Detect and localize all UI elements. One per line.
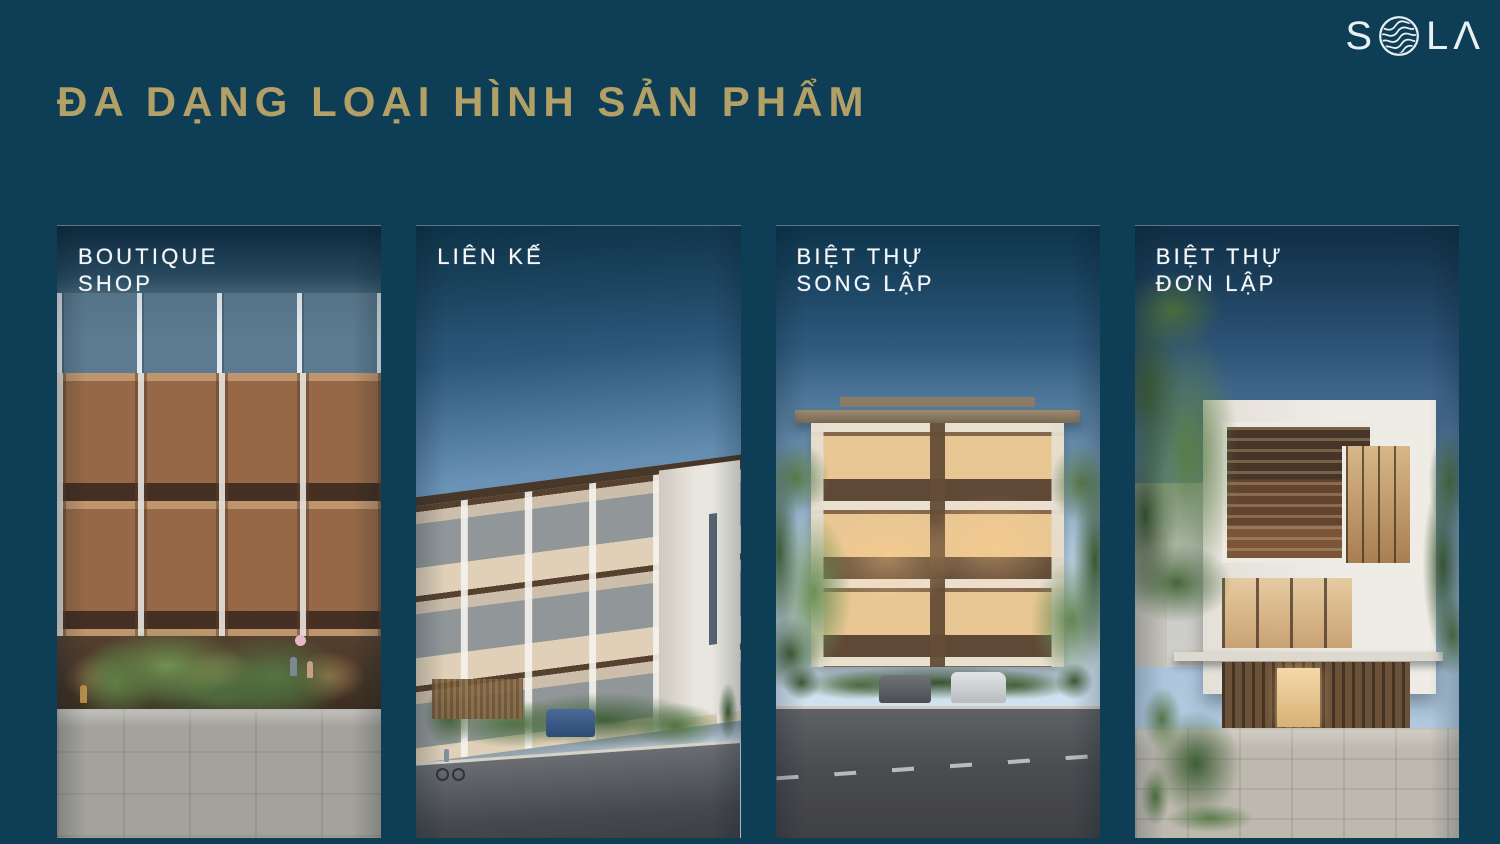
card-label: LIÊN KẾ: [437, 243, 544, 270]
fence: [432, 679, 523, 719]
card-label: BIỆT THỰ ĐƠN LẬP: [1156, 243, 1284, 298]
product-card-biet-thu-song-lap: BIỆT THỰ SONG LẬP: [776, 225, 1100, 838]
pedestrian: [80, 685, 87, 703]
card-label-line: BIỆT THỰ: [1156, 243, 1284, 270]
bicycle-wheel: [452, 768, 465, 781]
logo-letter-a: Λ: [1453, 16, 1480, 56]
logo-o-wave-icon: [1377, 14, 1421, 58]
card-label-line: ĐƠN LẬP: [1156, 270, 1284, 297]
car: [546, 709, 595, 737]
upper-roof: [840, 397, 1035, 407]
tree-left: [1135, 257, 1258, 636]
card-label: BOUTIQUE SHOP: [78, 243, 219, 298]
hedge: [776, 654, 1100, 706]
card-label: BIỆT THỰ SONG LẬP: [797, 243, 935, 298]
bicycle-wheel: [436, 768, 449, 781]
building-facade: [57, 373, 381, 636]
pavement: [57, 709, 381, 838]
page-title: ĐA DẠNG LOẠI HÌNH SẢN PHẨM: [57, 78, 869, 126]
card-label-line: LIÊN KẾ: [437, 243, 544, 270]
logo-letter-l: L: [1426, 16, 1448, 56]
card-label-line: SONG LẬP: [797, 270, 935, 297]
pedestrian: [307, 661, 313, 678]
logo-letter-s: S: [1345, 16, 1372, 56]
card-label-line: BOUTIQUE: [78, 243, 219, 270]
lit-entrance: [1277, 668, 1319, 727]
product-card-boutique-shop: BOUTIQUE SHOP: [57, 225, 381, 838]
sola-logo: S L Λ: [1345, 14, 1480, 58]
car: [879, 675, 931, 703]
tree-right: [1414, 410, 1459, 692]
glass-top-floor: [57, 293, 381, 383]
slide-background: S L Λ ĐA DẠNG LOẠI HÌNH SẢN PHẨM: [0, 0, 1500, 844]
product-card-biet-thu-don-lap: BIỆT THỰ ĐƠN LẬP: [1135, 225, 1459, 838]
cyclist: [444, 749, 449, 762]
car: [951, 672, 1006, 703]
gable-window: [710, 513, 718, 645]
product-card-lien-ke: LIÊN KẾ: [416, 225, 740, 838]
roof-overhang: [795, 410, 1080, 423]
pedestrian: [290, 657, 297, 676]
balcony-windows: [1342, 446, 1410, 562]
card-label-line: BIỆT THỰ: [797, 243, 935, 270]
entry-canopy: [1174, 652, 1443, 661]
garden: [1135, 673, 1271, 838]
product-cards-row: BOUTIQUE SHOP LIÊN KẾ: [57, 225, 1459, 838]
card-label-line: SHOP: [78, 270, 219, 297]
